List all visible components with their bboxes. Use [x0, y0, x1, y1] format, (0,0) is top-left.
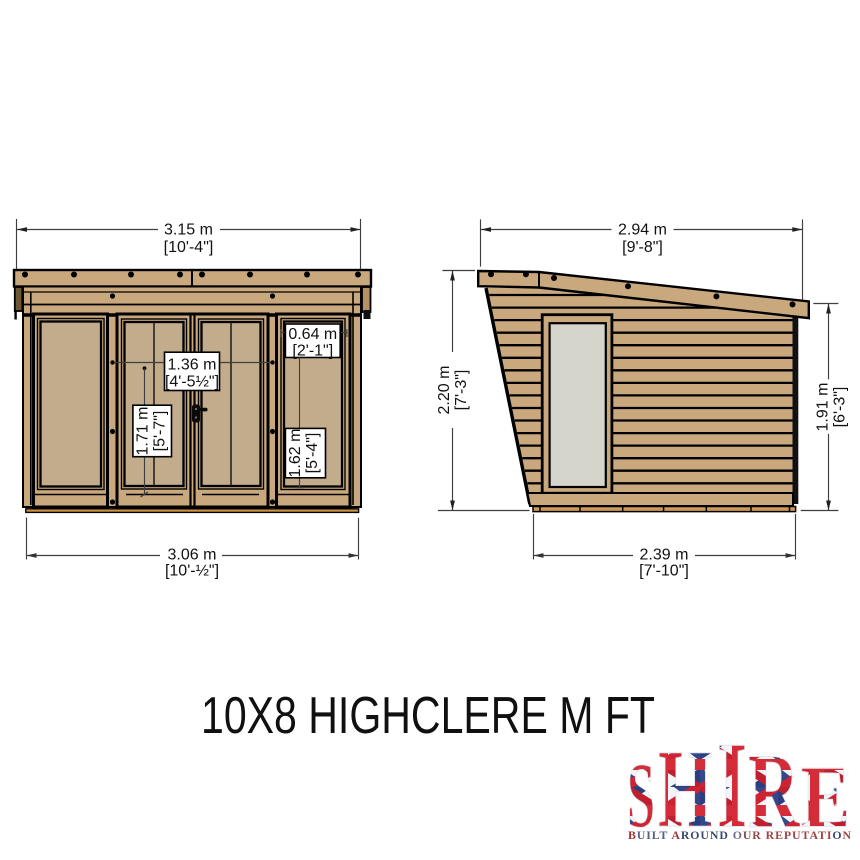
svg-text:1.71 m: 1.71 m [135, 407, 152, 456]
svg-text:[9'-8"]: [9'-8"] [622, 239, 663, 256]
svg-text:0.64 m: 0.64 m [288, 326, 337, 343]
svg-text:[7'-3"]: [7'-3"] [453, 370, 470, 411]
svg-text:[10'-4"]: [10'-4"] [164, 239, 214, 256]
svg-text:10X8 HIGHCLERE M FT: 10X8 HIGHCLERE M FT [201, 687, 655, 745]
svg-text:[7'-10"]: [7'-10"] [639, 563, 689, 580]
svg-text:1.36 m: 1.36 m [168, 356, 217, 373]
svg-text:3.15 m: 3.15 m [164, 222, 213, 239]
svg-text:2.94 m: 2.94 m [618, 222, 667, 239]
svg-text:[5'-7"]: [5'-7"] [152, 411, 169, 452]
svg-text:[6'-3"]: [6'-3"] [832, 387, 849, 428]
svg-text:1.91 m: 1.91 m [815, 383, 832, 432]
svg-text:2.20 m: 2.20 m [436, 366, 453, 415]
svg-text:1.62 m: 1.62 m [287, 429, 304, 478]
svg-text:[4'-5½"]: [4'-5½"] [165, 373, 219, 390]
svg-text:3.06 m: 3.06 m [168, 547, 217, 564]
svg-text:[5'-4"]: [5'-4"] [304, 433, 321, 474]
svg-text:2.39 m: 2.39 m [640, 547, 689, 564]
svg-text:[2'-1"]: [2'-1"] [292, 342, 333, 359]
svg-text:[10'-½"]: [10'-½"] [165, 563, 219, 580]
svg-text:BUILT AROUND OUR REPUTATION: BUILT AROUND OUR REPUTATION [628, 830, 852, 842]
